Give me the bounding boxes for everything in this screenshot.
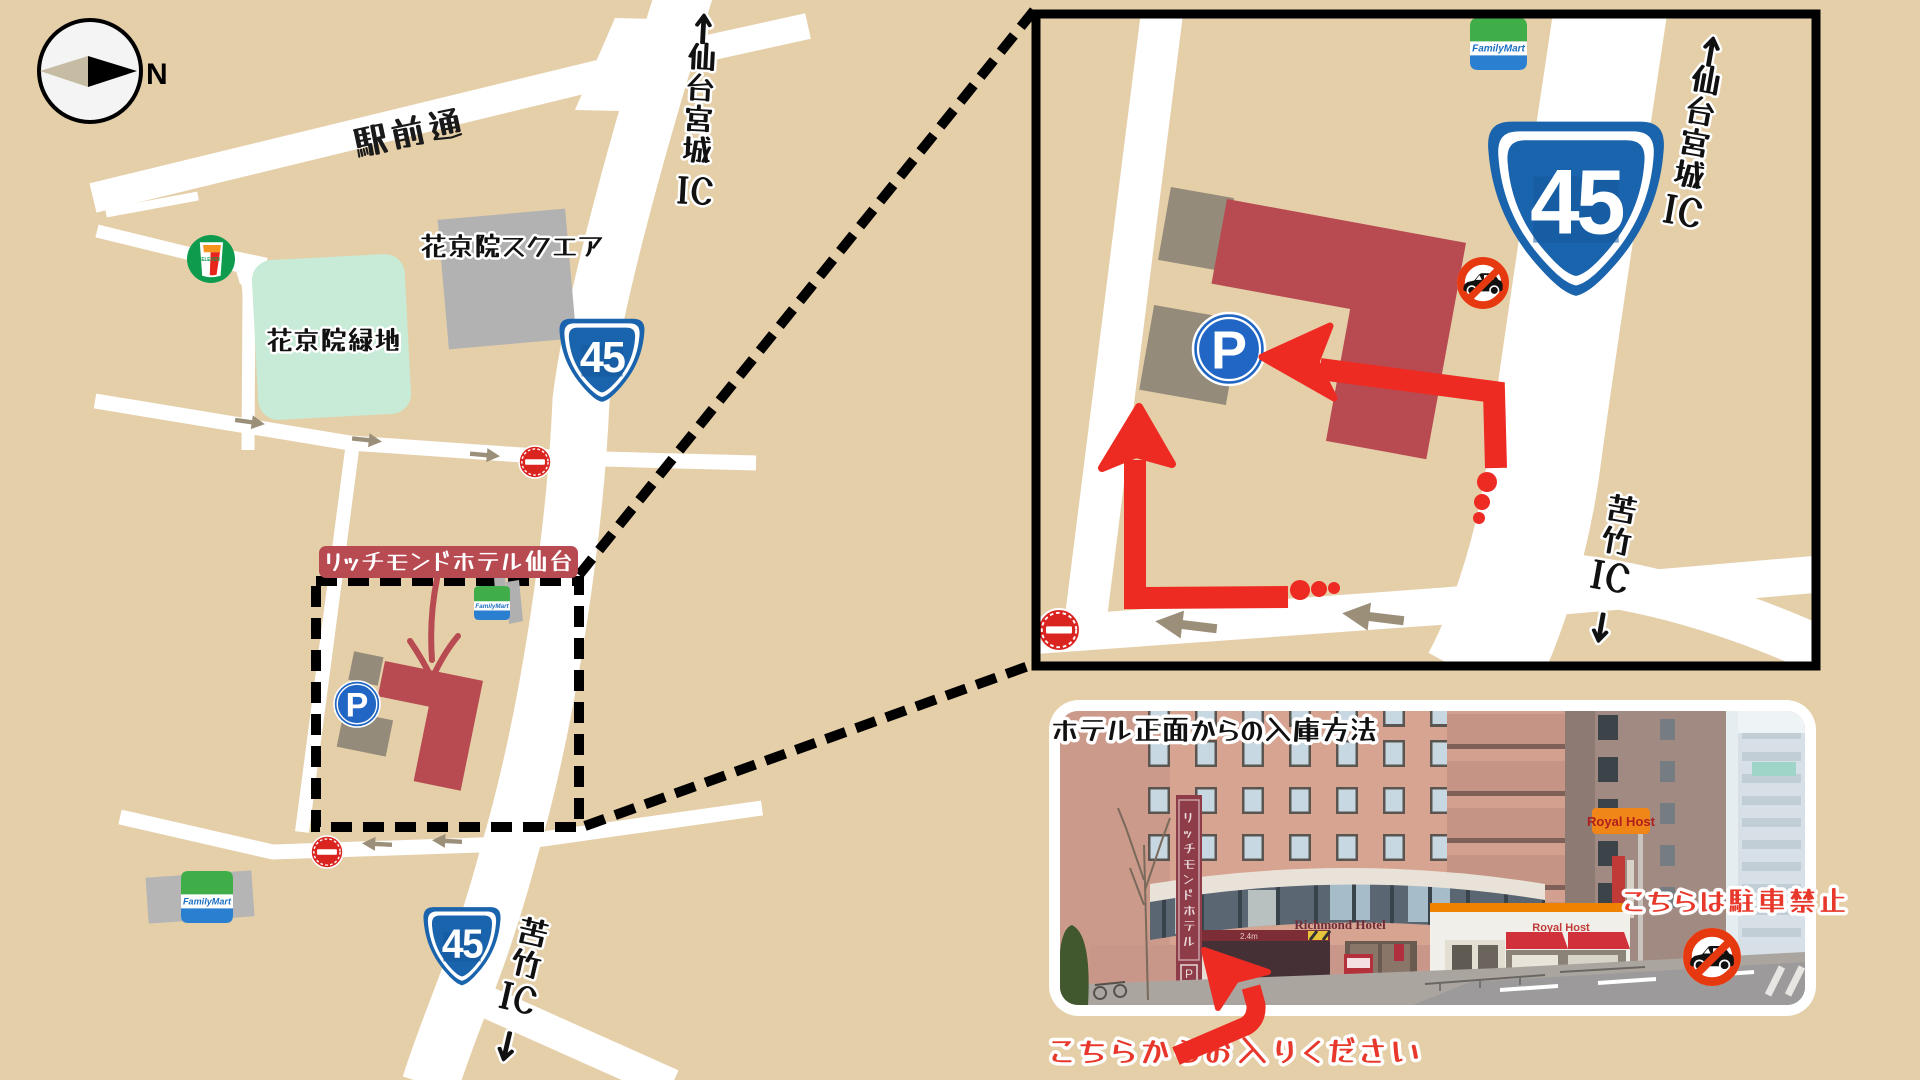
- svg-text:Royal Host: Royal Host: [1587, 814, 1656, 829]
- svg-text:45: 45: [1530, 151, 1623, 253]
- svg-text:45: 45: [442, 921, 484, 966]
- svg-text:N: N: [146, 58, 168, 91]
- svg-text:FamilyMart: FamilyMart: [475, 603, 509, 610]
- svg-text:P: P: [346, 686, 369, 724]
- svg-text:P: P: [1185, 967, 1193, 981]
- svg-text:ELEVEN: ELEVEN: [201, 257, 219, 263]
- svg-text:FamilyMart: FamilyMart: [183, 897, 232, 907]
- svg-text:P: P: [1211, 320, 1247, 380]
- svg-text:45: 45: [580, 334, 625, 382]
- svg-text:Richmond Hotel: Richmond Hotel: [1294, 917, 1386, 932]
- svg-text:2.4m: 2.4m: [1240, 932, 1258, 941]
- svg-text:FamilyMart: FamilyMart: [1472, 44, 1525, 55]
